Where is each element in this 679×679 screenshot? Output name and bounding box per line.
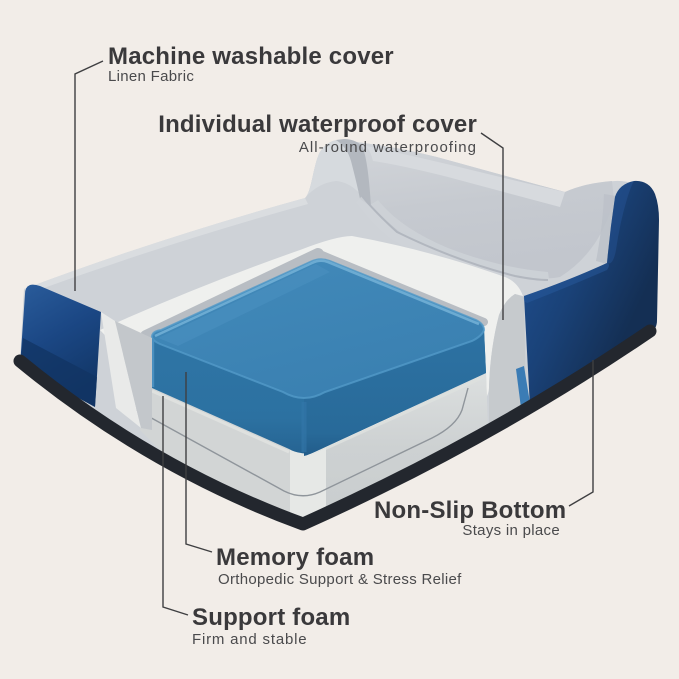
svg-text:Support foam: Support foam bbox=[192, 604, 350, 631]
svg-text:Orthopedic Support & Stress Re: Orthopedic Support & Stress Relief bbox=[218, 571, 462, 588]
svg-text:All-round waterproofing: All-round waterproofing bbox=[299, 139, 477, 156]
svg-text:Stays in place: Stays in place bbox=[462, 522, 560, 539]
svg-text:Non-Slip Bottom: Non-Slip Bottom bbox=[374, 497, 566, 524]
svg-text:Individual waterproof cover: Individual waterproof cover bbox=[158, 111, 477, 138]
svg-text:Linen Fabric: Linen Fabric bbox=[108, 68, 194, 85]
svg-text:Firm and stable: Firm and stable bbox=[192, 631, 307, 648]
svg-text:Memory foam: Memory foam bbox=[216, 544, 374, 571]
svg-text:Machine washable cover: Machine washable cover bbox=[108, 43, 394, 70]
